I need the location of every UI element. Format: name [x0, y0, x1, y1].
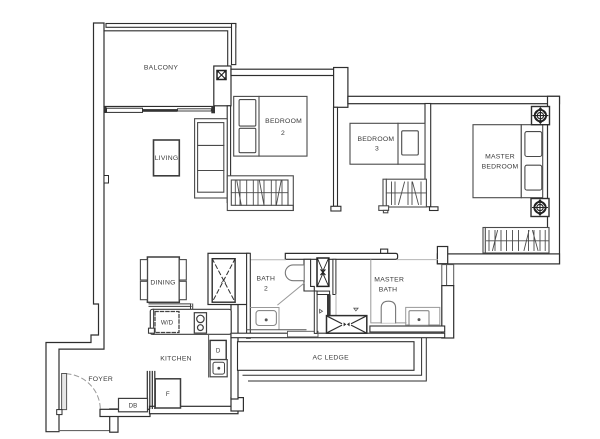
svg-text:BEDROOM: BEDROOM: [265, 118, 302, 125]
svg-text:BATH: BATH: [379, 286, 398, 293]
svg-text:2: 2: [264, 285, 268, 292]
svg-text:LIVING: LIVING: [155, 155, 179, 162]
svg-text:3: 3: [375, 145, 379, 152]
svg-text:MASTER: MASTER: [485, 154, 515, 161]
svg-text:DINING: DINING: [150, 279, 175, 286]
svg-text:X: X: [221, 276, 227, 285]
svg-text:DB: DB: [129, 403, 138, 410]
svg-text:AC LEDGE: AC LEDGE: [313, 355, 350, 362]
svg-text:BEDROOM: BEDROOM: [357, 136, 394, 143]
svg-text:FOYER: FOYER: [88, 376, 113, 383]
svg-text:BEDROOM: BEDROOM: [482, 164, 519, 171]
svg-text:W/D: W/D: [161, 319, 174, 326]
svg-text:F: F: [166, 391, 170, 398]
svg-text:KITCHEN: KITCHEN: [160, 355, 192, 362]
svg-text:BATH: BATH: [256, 276, 275, 283]
svg-text:D: D: [216, 347, 221, 354]
svg-text:2: 2: [281, 130, 285, 137]
svg-text:MASTER: MASTER: [374, 276, 404, 283]
svg-text:BALCONY: BALCONY: [144, 65, 178, 72]
